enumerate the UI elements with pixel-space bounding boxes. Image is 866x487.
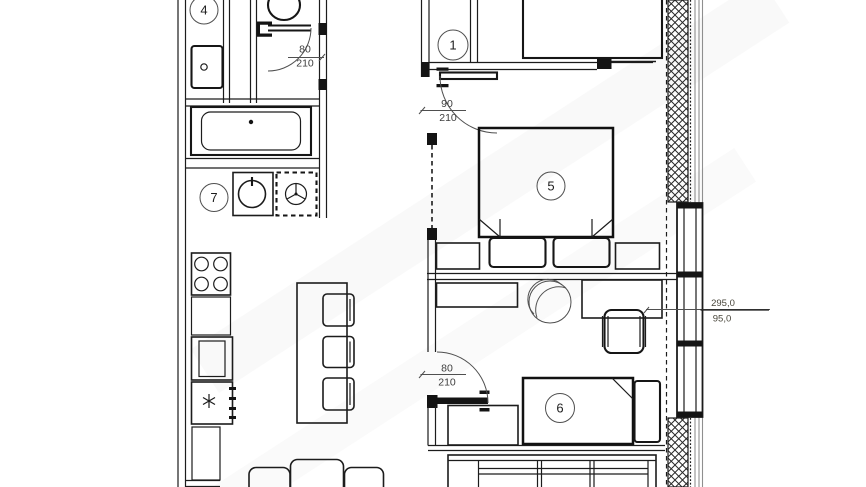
dimension-height: 95,0 [713,314,732,325]
door-leaf [437,398,488,405]
pillow-icon [490,238,546,267]
bathtub-drain [249,120,253,124]
bathtub-outline [191,107,311,155]
dimension-height: 210 [439,112,457,124]
insulation-hatch [668,0,688,202]
bed-outline [523,378,633,444]
cooktop-appliance-icon [277,173,317,216]
floor-plan: 4 80 210 7 [0,0,866,487]
burner [195,277,209,291]
bathroom: 4 80 210 [190,0,325,155]
stove-icon [192,253,231,295]
closet-dividers [448,461,656,487]
washing-machine-knob [201,64,207,70]
chair-icon [323,337,354,368]
kitchen-counter [192,427,220,480]
burner [214,277,228,291]
dimension-width: 80 [441,363,453,375]
door-leaf [268,26,311,31]
blanket-fold-mark [612,378,633,399]
wall-above-tub [186,99,319,106]
dimension-width: 80 [299,44,311,56]
floor-plan-canvas: 4 80 210 7 [0,0,866,487]
blanket-fold-marks [479,219,613,237]
toilet-icon [268,0,300,20]
room-number-bathroom: 4 [200,3,207,18]
bathtub-icon [191,107,311,155]
burner [214,257,228,271]
freezer-asterisk [203,394,215,408]
pillow-icon [635,381,661,442]
door-leaf [440,73,497,80]
desk-chair-seat [605,310,644,353]
refrigerator-icon [192,382,237,424]
kitchen-sink-icon [233,173,273,216]
burner [195,257,209,271]
sofa-armrest [345,468,384,487]
bathtub-basin [202,112,301,150]
door-hinge-marks [257,22,272,37]
dimension-width: 295,0 [711,298,735,309]
closet-outline [448,455,656,487]
left-strip-walls [178,0,327,487]
insulation-hatch [668,418,688,487]
desk-chair-armrests [603,316,646,347]
left-wall-segments [428,240,436,446]
dimension-width: 90 [441,98,453,110]
desk-chair-icon [603,310,646,353]
room-number-hallway: 1 [449,38,456,53]
door-frame-marks [437,68,449,88]
room-number-kids-room: 6 [556,401,563,416]
wardrobe-top-icon [523,0,662,58]
single-bed-icon [523,378,660,444]
shaft-walls [224,0,257,103]
exterior-wall-left [178,0,186,487]
kids-room-bottom-wall [428,446,665,451]
dimension-bedroom-door: 90 210 [419,98,466,124]
dimension-height: 210 [296,58,314,70]
dimension-window: 295,0 95,0 [644,298,770,325]
room-number-kitchen: 7 [210,190,217,205]
wall-end-block [421,62,430,77]
room-number-bedroom: 5 [547,179,554,194]
bathroom-kitchen-wall [186,159,319,169]
hall-bedroom-wall [429,63,653,70]
closet-icon [448,455,656,487]
dimension-height: 210 [438,377,456,389]
appliance-dial-center [295,193,298,196]
wall-step-block [597,58,612,69]
